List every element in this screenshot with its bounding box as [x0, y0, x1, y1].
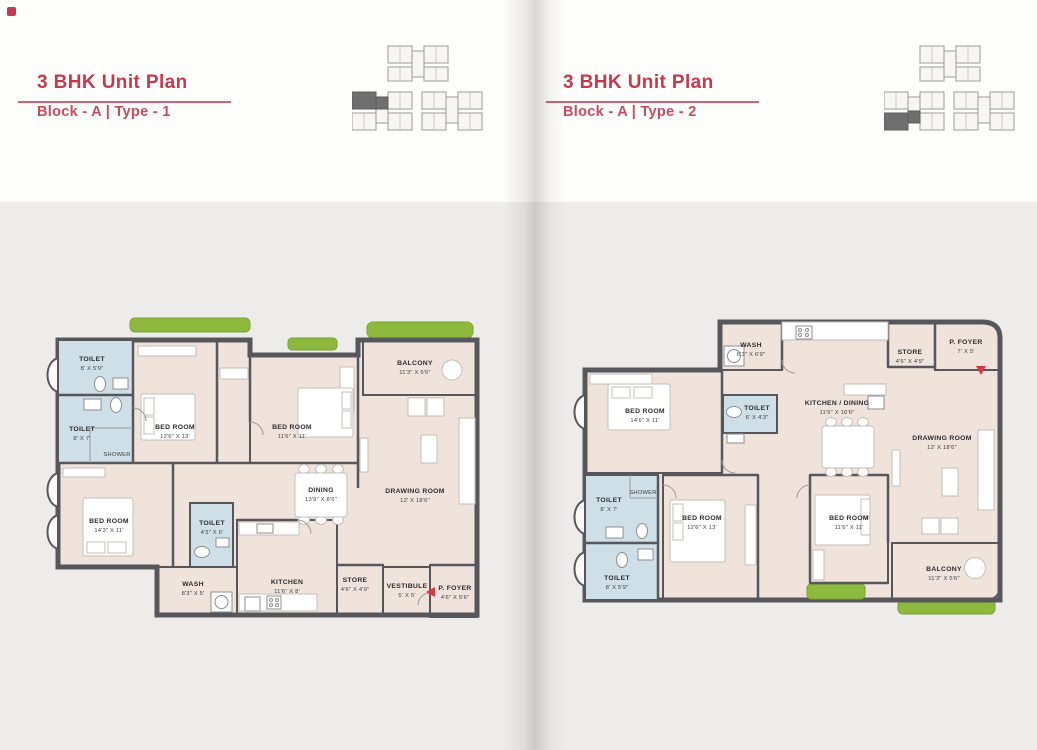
svg-text:P. FOYER: P. FOYER: [949, 339, 982, 346]
svg-text:STORE: STORE: [343, 577, 368, 584]
svg-text:BED ROOM: BED ROOM: [682, 515, 722, 522]
left-page-header: 3 BHK Unit Plan Block - A | Type - 1: [37, 72, 188, 120]
wc: [727, 407, 742, 418]
planter: [130, 318, 250, 332]
title-underline: [546, 101, 759, 103]
svg-text:8' X 5'9": 8' X 5'9": [606, 585, 629, 591]
dining-table: [822, 426, 874, 468]
svg-text:8'3" X 5': 8'3" X 5': [182, 591, 205, 597]
svg-text:P. FOYER: P. FOYER: [438, 585, 471, 592]
key-plan-building-bottom-left: [352, 92, 412, 130]
key-plan-building-top: [920, 46, 980, 81]
svg-text:4'3" X 6': 4'3" X 6': [201, 530, 224, 536]
svg-text:SHOWER: SHOWER: [103, 452, 130, 458]
svg-text:VESTIBULE: VESTIBULE: [387, 583, 428, 590]
svg-text:7' X 5': 7' X 5': [957, 349, 974, 355]
svg-text:WASH: WASH: [182, 581, 204, 588]
key-plan-building-bottom-right: [954, 92, 1014, 130]
svg-text:14'6" X 11': 14'6" X 11': [630, 418, 659, 424]
svg-text:BED ROOM: BED ROOM: [89, 518, 129, 525]
wc: [111, 398, 122, 413]
key-plan-building-bottom-right: [422, 92, 482, 130]
svg-text:13'9" X 8'6": 13'9" X 8'6": [305, 497, 337, 503]
wc: [637, 524, 648, 539]
page-title: 3 BHK Unit Plan: [37, 72, 188, 94]
svg-text:12' X 18'6": 12' X 18'6": [927, 445, 957, 451]
wc: [617, 553, 628, 568]
svg-text:TOILET: TOILET: [79, 356, 105, 363]
svg-text:KITCHEN / DINING: KITCHEN / DINING: [805, 400, 869, 407]
key-plan-type-1: [352, 44, 484, 136]
bay-window: [48, 515, 59, 549]
svg-text:6'3" X 6'9": 6'3" X 6'9": [737, 352, 766, 358]
brand-mark: [7, 7, 16, 16]
svg-text:TOILET: TOILET: [596, 497, 622, 504]
planter: [807, 584, 865, 599]
svg-text:4'6" X 5'6": 4'6" X 5'6": [441, 595, 470, 601]
bay-window: [575, 500, 586, 534]
key-plan-type-2: [884, 44, 1016, 136]
brochure-spread: { "colors": { "accent": "#c33950", "wall…: [0, 0, 1037, 750]
svg-text:BED ROOM: BED ROOM: [625, 408, 665, 415]
svg-text:11'3" X 5'6": 11'3" X 5'6": [399, 370, 431, 376]
svg-text:6' X 4'3": 6' X 4'3": [746, 415, 769, 421]
key-plan-building-bottom-left: [884, 92, 944, 130]
svg-text:11'6" X 11': 11'6" X 11': [835, 525, 864, 531]
svg-text:12'6" X 13': 12'6" X 13': [687, 525, 717, 531]
balcony-table: [965, 558, 986, 579]
floor-plan-type-1: TOILET 8' X 5'9" TOILET 8' X 7' SHOWER B…: [35, 310, 485, 640]
svg-text:8' X 7': 8' X 7': [73, 436, 90, 442]
svg-text:SHOWER: SHOWER: [629, 490, 656, 496]
washbasin: [606, 527, 623, 538]
page-title: 3 BHK Unit Plan: [563, 72, 714, 94]
svg-text:11'3" X 5'6": 11'3" X 5'6": [928, 576, 960, 582]
bay-window: [575, 395, 586, 429]
bay-window: [48, 473, 59, 507]
svg-text:TOILET: TOILET: [744, 405, 770, 412]
svg-text:DINING: DINING: [308, 487, 334, 494]
svg-text:BED ROOM: BED ROOM: [155, 424, 195, 431]
svg-text:KITCHEN: KITCHEN: [271, 579, 303, 586]
svg-text:4'6" X 4'9": 4'6" X 4'9": [341, 587, 370, 593]
title-underline: [18, 101, 231, 103]
planter: [288, 338, 337, 350]
svg-text:WASH: WASH: [740, 342, 762, 349]
svg-text:4'6" X 4'9": 4'6" X 4'9": [896, 359, 925, 365]
svg-text:BALCONY: BALCONY: [926, 566, 962, 573]
washbasin: [84, 399, 101, 410]
sofa: [978, 430, 994, 510]
dining-table: [295, 473, 347, 517]
washbasin: [727, 434, 744, 443]
bay-window: [575, 552, 586, 586]
floor-plan-type-2: WASH 6'3" X 6'9" STORE 4'6" X 4'9" P. FO…: [550, 300, 1020, 630]
svg-text:BED ROOM: BED ROOM: [272, 424, 312, 431]
unit-location-highlight: [352, 92, 376, 109]
bay-window: [48, 358, 59, 392]
page-subtitle: Block - A | Type - 2: [563, 104, 714, 120]
washbasin: [216, 538, 229, 547]
svg-text:BALCONY: BALCONY: [397, 360, 433, 367]
washbasin: [638, 549, 653, 560]
sofa: [459, 418, 475, 504]
svg-text:11'6" X 16'6": 11'6" X 16'6": [820, 410, 855, 416]
svg-text:DRAWING ROOM: DRAWING ROOM: [385, 488, 445, 495]
svg-text:TOILET: TOILET: [199, 520, 225, 527]
planter: [367, 322, 473, 338]
svg-text:11'6" X 8': 11'6" X 8': [274, 589, 300, 595]
svg-text:12'6" X 13': 12'6" X 13': [160, 434, 190, 440]
unit-location-highlight: [884, 113, 908, 130]
svg-text:8' X 5'9": 8' X 5'9": [81, 366, 104, 372]
key-plan-building-top: [388, 46, 448, 81]
svg-text:BED ROOM: BED ROOM: [829, 515, 869, 522]
svg-text:14'3" X 11': 14'3" X 11': [94, 528, 123, 534]
washbasin: [113, 378, 128, 389]
wc: [195, 547, 210, 558]
svg-text:TOILET: TOILET: [69, 426, 95, 433]
wc: [95, 377, 106, 392]
svg-text:STORE: STORE: [898, 349, 923, 356]
svg-text:TOILET: TOILET: [604, 575, 630, 582]
svg-text:5' X 5': 5' X 5': [398, 593, 415, 599]
right-page-header: 3 BHK Unit Plan Block - A | Type - 2: [563, 72, 714, 120]
balcony-table: [442, 360, 462, 380]
svg-text:8' X 7': 8' X 7': [600, 507, 617, 513]
svg-text:DRAWING ROOM: DRAWING ROOM: [912, 435, 972, 442]
svg-text:11'6" X 11': 11'6" X 11': [278, 434, 307, 440]
svg-text:12' X 18'6": 12' X 18'6": [400, 498, 430, 504]
page-subtitle: Block - A | Type - 1: [37, 104, 188, 120]
